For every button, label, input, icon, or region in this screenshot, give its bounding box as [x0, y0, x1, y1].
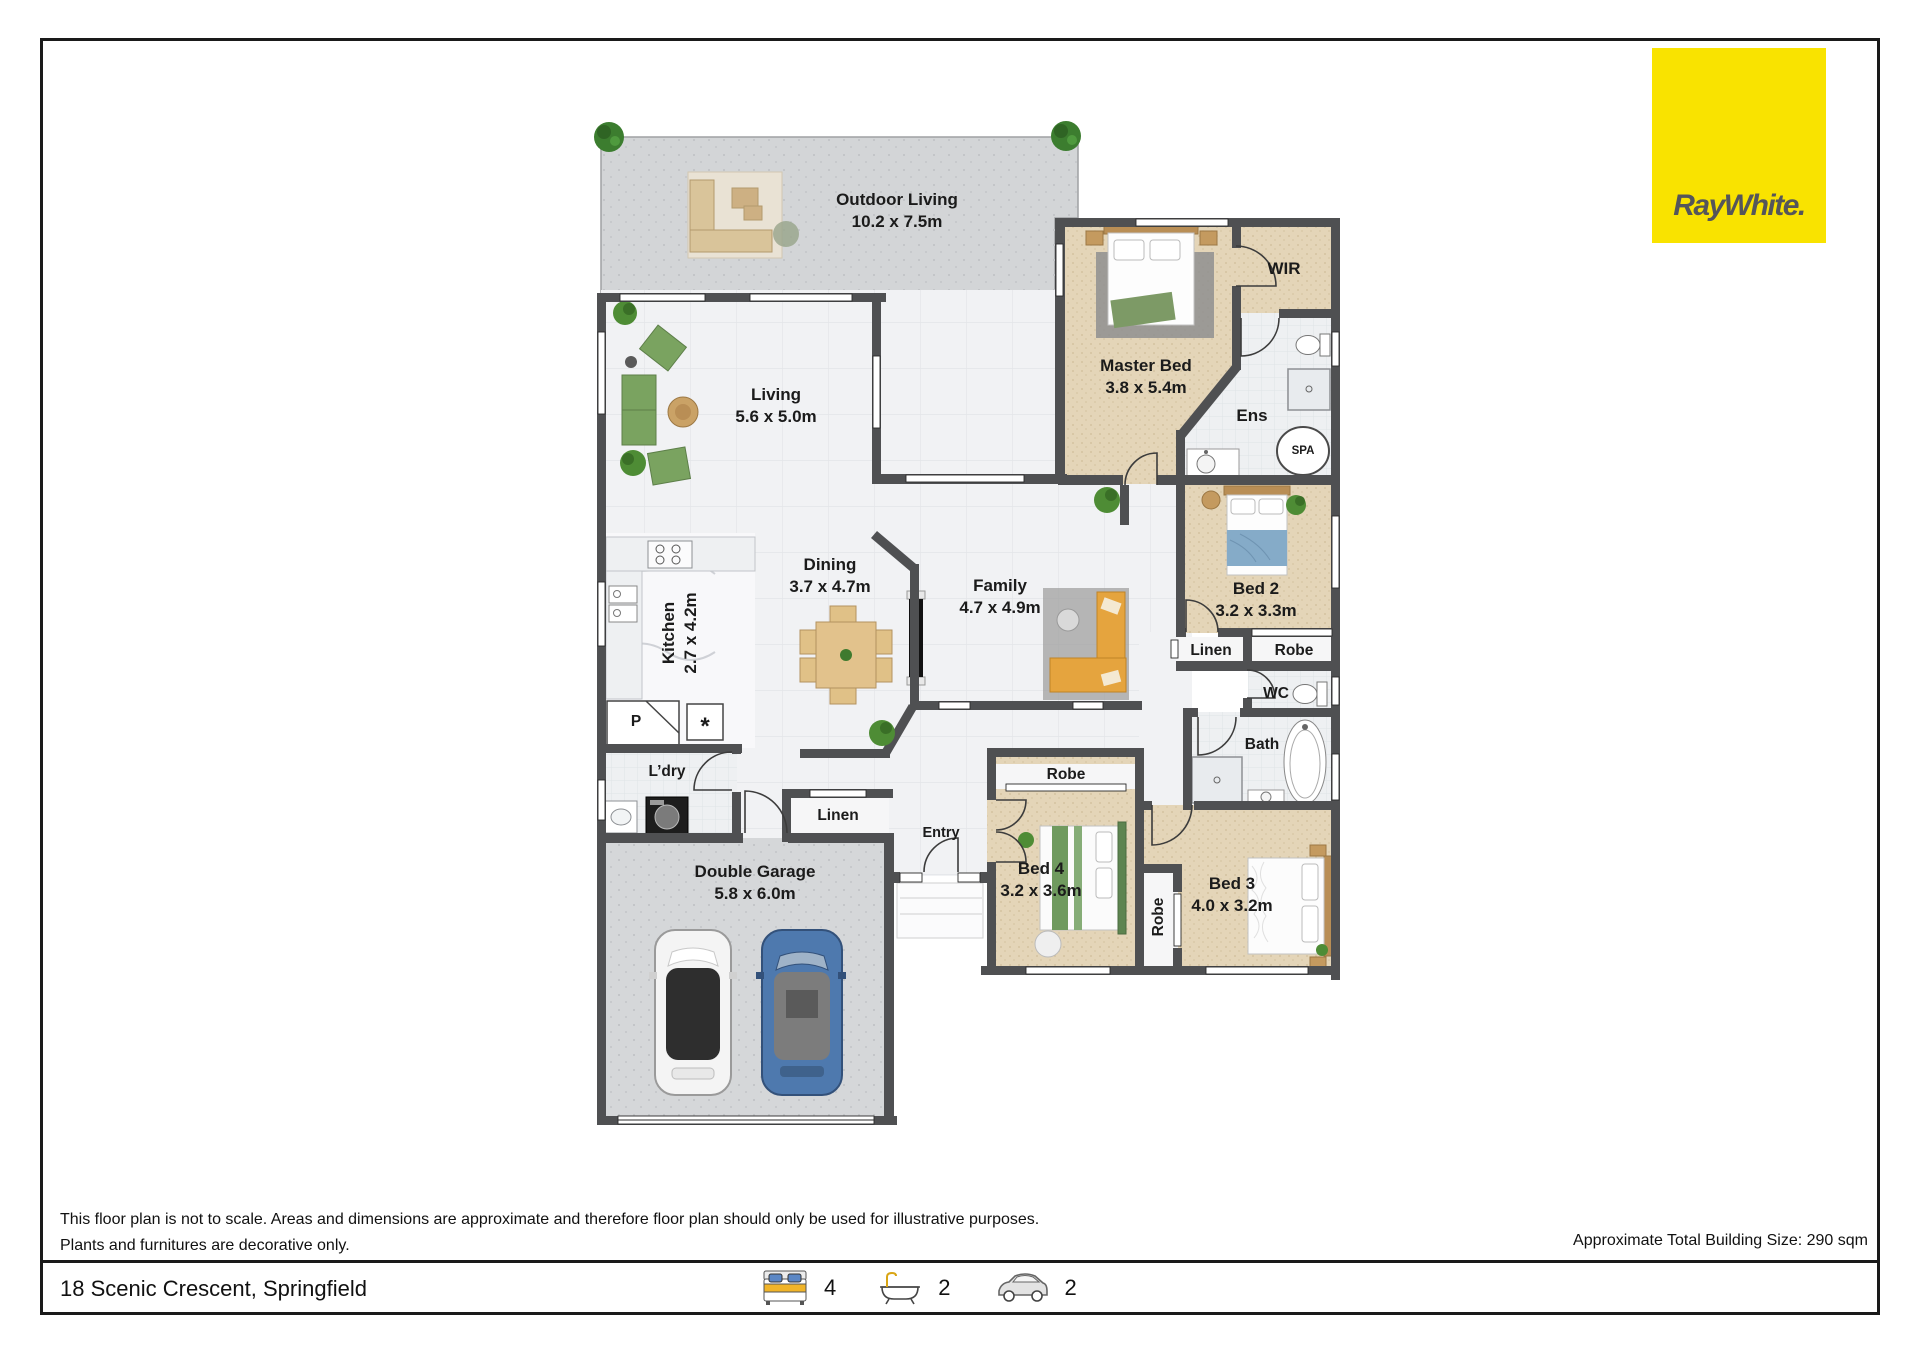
bath-count: 2 [938, 1275, 950, 1301]
room-label-robe-bed2: Robe [1275, 642, 1314, 660]
family-sofa-set [1043, 588, 1129, 700]
laundry-fixtures [605, 797, 688, 835]
tree [594, 122, 624, 152]
room-label-laundry: L’dry [648, 763, 685, 781]
room-label-ens: Ens [1236, 405, 1267, 427]
room-label-robe-bed4: Robe [1047, 766, 1086, 784]
room-label-entry: Entry [922, 825, 959, 841]
disclaimer-line1: This floor plan is not to scale. Areas a… [60, 1211, 1039, 1229]
blue-car [756, 930, 846, 1095]
outdoor-sofa-set [688, 172, 799, 258]
room-label-kitchen: Kitchen2.7 x 4.2m [658, 592, 702, 673]
property-stats: 4 2 2 [762, 1266, 1103, 1310]
room-label-bed2: Bed 23.2 x 3.3m [1215, 578, 1296, 622]
room-label-bed4: Bed 43.2 x 3.6m [1000, 858, 1081, 902]
bath-icon [878, 1269, 922, 1307]
room-label-garage: Double Garage5.8 x 6.0m [695, 861, 816, 905]
bed-count: 4 [824, 1275, 836, 1301]
room-label-dining: Dining3.7 x 4.7m [789, 554, 870, 598]
address: 18 Scenic Crescent, Springfield [60, 1276, 367, 1302]
floor-plan-page: RayWhite. [0, 0, 1920, 1357]
footer-divider [40, 1260, 1880, 1263]
room-label-outdoor-living: Outdoor Living10.2 x 7.5m [836, 189, 958, 233]
room-label-linen-hall: Linen [1190, 642, 1231, 660]
white-car [649, 930, 737, 1095]
disclaimer-line2: Plants and furnitures are decorative onl… [60, 1237, 350, 1255]
room-label-master-bed: Master Bed3.8 x 5.4m [1100, 355, 1192, 399]
room-label-robe-bed3: Robe [1150, 898, 1168, 937]
porch [897, 883, 983, 938]
room-label-living: Living5.6 x 5.0m [735, 384, 816, 428]
tree [1051, 121, 1081, 151]
room-label-spa: SPA [1292, 445, 1315, 457]
room-label-wir: WIR [1267, 258, 1300, 280]
room-label-wc: WC [1263, 685, 1289, 703]
room-label-family: Family4.7 x 4.9m [959, 575, 1040, 619]
room-label-bed3: Bed 34.0 x 3.2m [1191, 873, 1272, 917]
car-count: 2 [1065, 1275, 1077, 1301]
room-label-appliance: * [700, 716, 709, 738]
room-label-pantry: P [631, 713, 641, 731]
building-size: Approximate Total Building Size: 290 sqm [1573, 1232, 1868, 1250]
car-icon [993, 1269, 1049, 1307]
bed-icon [762, 1269, 808, 1307]
room-label-bath: Bath [1245, 736, 1279, 754]
room-label-linen-entry: Linen [817, 807, 858, 825]
floor-plan-drawing [0, 0, 1920, 1357]
